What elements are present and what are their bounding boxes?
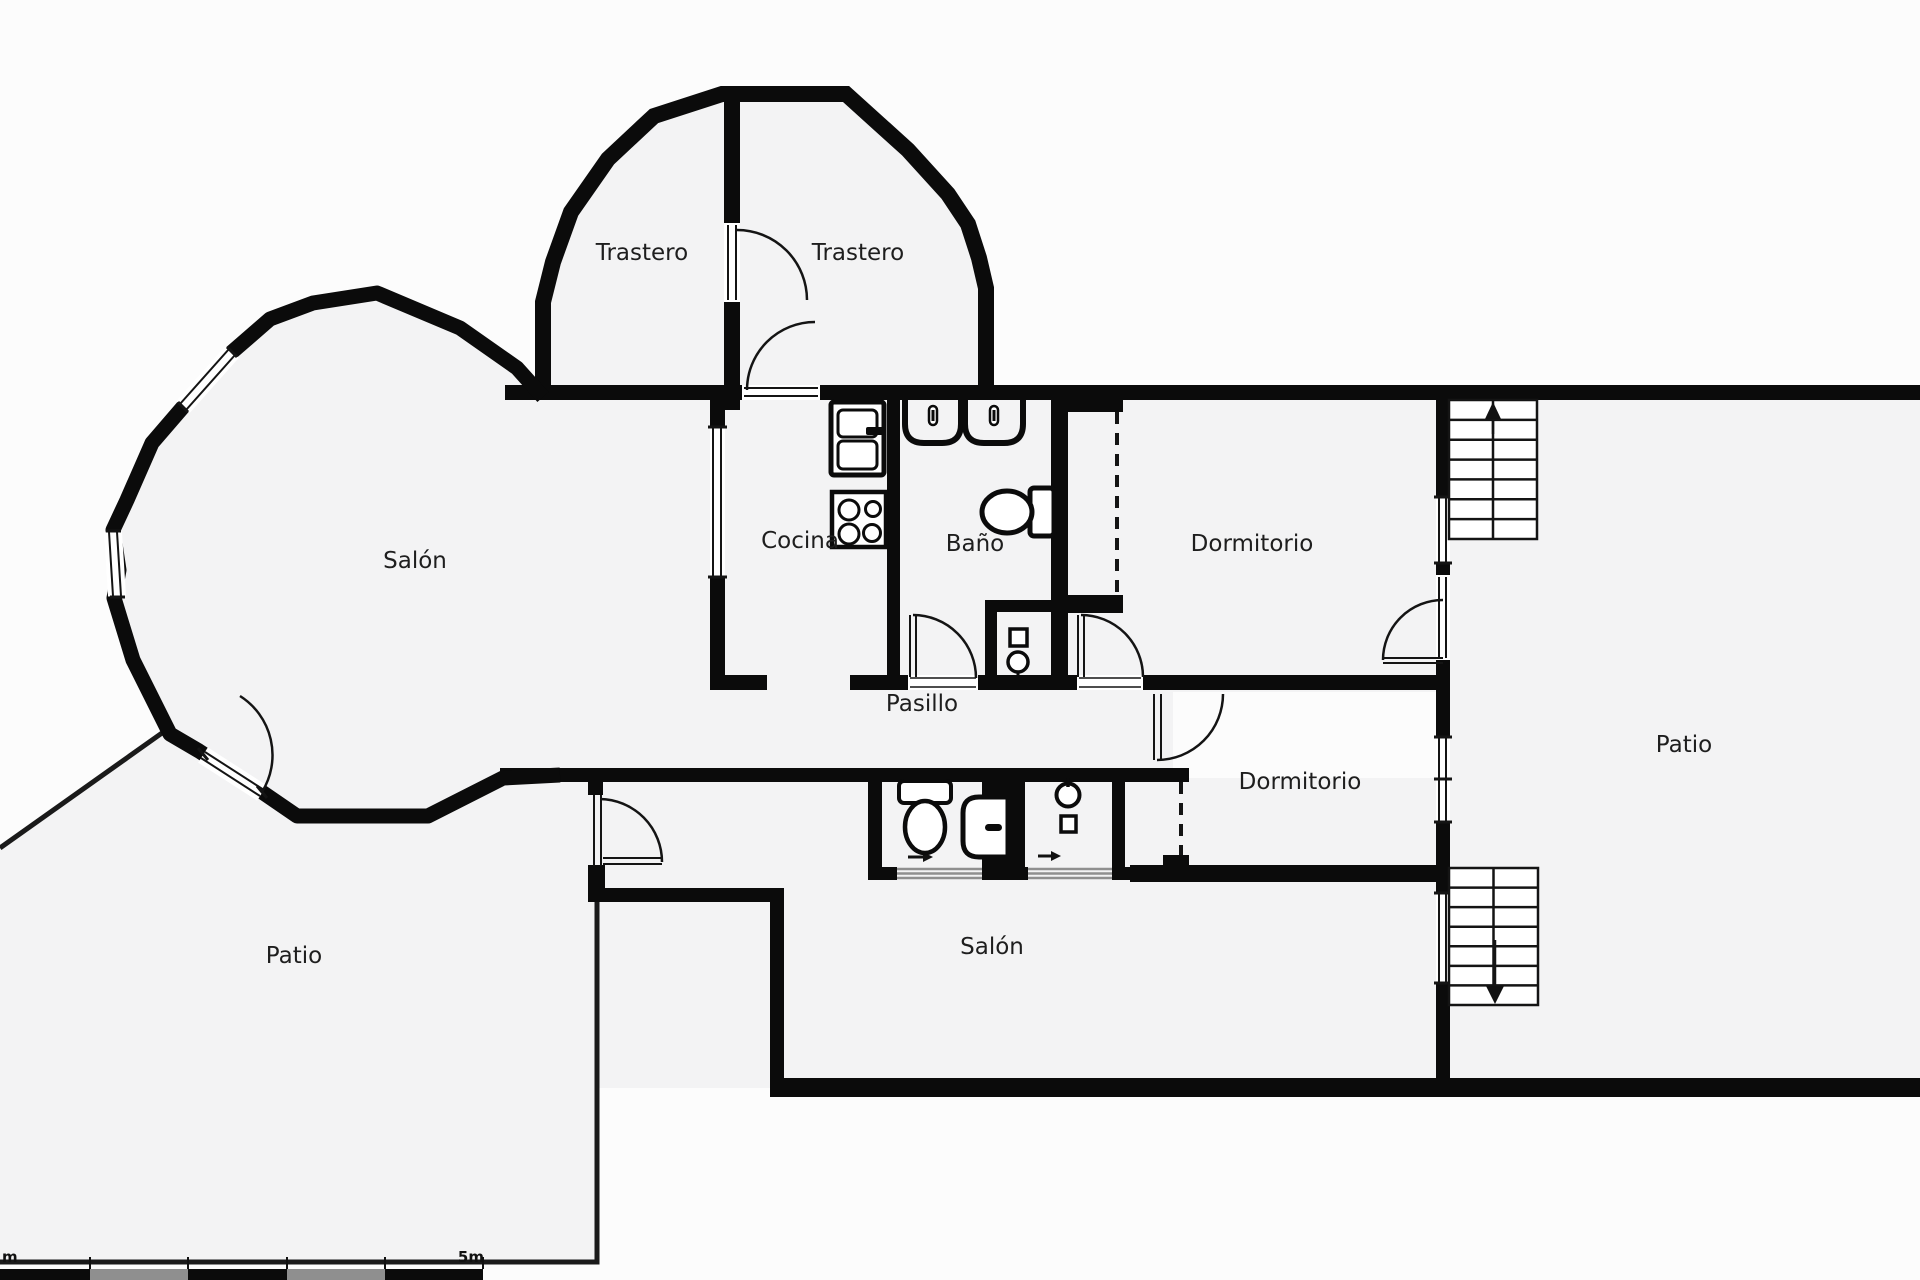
room-label-dormitorio-top: Dormitorio <box>1191 531 1314 557</box>
window-cocina <box>708 427 727 577</box>
scale-bar-start-label: m <box>2 1248 18 1266</box>
toilet-icon <box>982 488 1054 536</box>
stove-icon <box>832 492 886 547</box>
floor-plan-canvas: Trastero Trastero Salón Cocina Baño Dorm… <box>0 0 1920 1280</box>
room-label-salon-main: Salón <box>383 548 447 574</box>
room-label-pasillo: Pasillo <box>886 691 958 717</box>
window-salon-left <box>106 531 125 597</box>
room-label-patio-right: Patio <box>1656 732 1712 758</box>
room-label-bano: Baño <box>946 531 1005 557</box>
toilet-2-icon <box>899 781 951 853</box>
stairs-upper <box>1449 400 1537 539</box>
utility-sink-icon <box>1008 652 1028 672</box>
room-label-patio-left: Patio <box>266 943 322 969</box>
shower-icon <box>963 797 1008 857</box>
room-label-trastero-right: Trastero <box>811 240 904 266</box>
room-label-trastero-left: Trastero <box>595 240 688 266</box>
floor-plan-page: Trastero Trastero Salón Cocina Baño Dorm… <box>0 0 1920 1280</box>
window-dormitorio-lower <box>1434 737 1452 822</box>
fridge-icon <box>831 402 884 475</box>
room-label-cocina: Cocina <box>761 528 839 554</box>
scale-bar-end-label: 5m <box>458 1248 484 1266</box>
round-washbasin-icon <box>1057 778 1080 832</box>
stairs-lower <box>1449 868 1538 1005</box>
room-label-dormitorio-lower: Dormitorio <box>1239 769 1362 795</box>
room-label-salon-lower: Salón <box>960 934 1024 960</box>
